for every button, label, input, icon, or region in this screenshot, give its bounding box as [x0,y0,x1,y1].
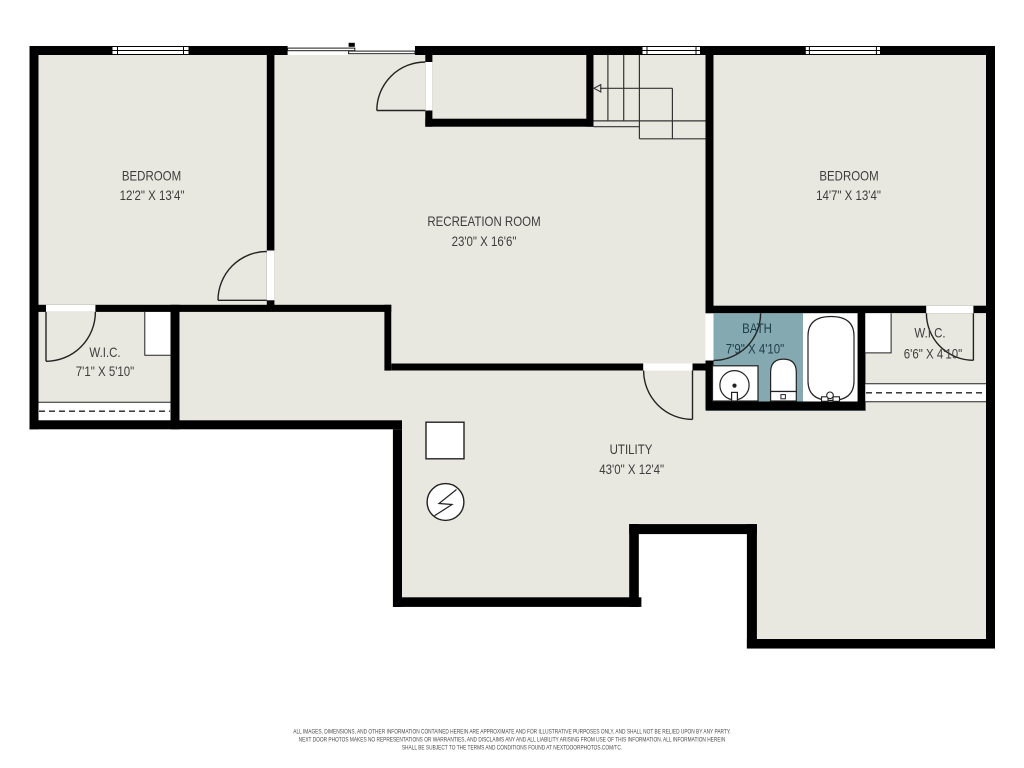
svg-text:12'2" X 13'4": 12'2" X 13'4" [120,187,185,203]
svg-text:W.I.C.: W.I.C. [89,344,120,360]
svg-text:UTILITY: UTILITY [610,441,653,457]
svg-text:43'0" X 12'4": 43'0" X 12'4" [599,461,664,477]
svg-text:BATH: BATH [742,320,772,336]
svg-text:14'7" X 13'4": 14'7" X 13'4" [816,187,881,203]
svg-text:6'6" X 4'10": 6'6" X 4'10" [904,345,962,361]
svg-text:7'1" X 5'10": 7'1" X 5'10" [76,363,134,379]
svg-text:NEXT DOOR PHOTOS MAKES NO REPR: NEXT DOOR PHOTOS MAKES NO REPRESENTATION… [299,737,726,744]
svg-text:ALL IMAGES, DIMENSIONS, AND OT: ALL IMAGES, DIMENSIONS, AND OTHER INFORM… [293,729,731,736]
svg-text:RECREATION ROOM: RECREATION ROOM [427,213,540,229]
svg-text:SHALL BE SUBJECT TO THE TERMS: SHALL BE SUBJECT TO THE TERMS AND CONDIT… [402,745,623,752]
svg-text:23'0" X 16'6": 23'0" X 16'6" [452,233,517,249]
svg-text:BEDROOM: BEDROOM [122,167,181,183]
svg-text:W.I.C.: W.I.C. [914,324,945,340]
svg-text:7'9" X 4'10": 7'9" X 4'10" [726,340,784,356]
svg-text:BEDROOM: BEDROOM [819,167,878,183]
